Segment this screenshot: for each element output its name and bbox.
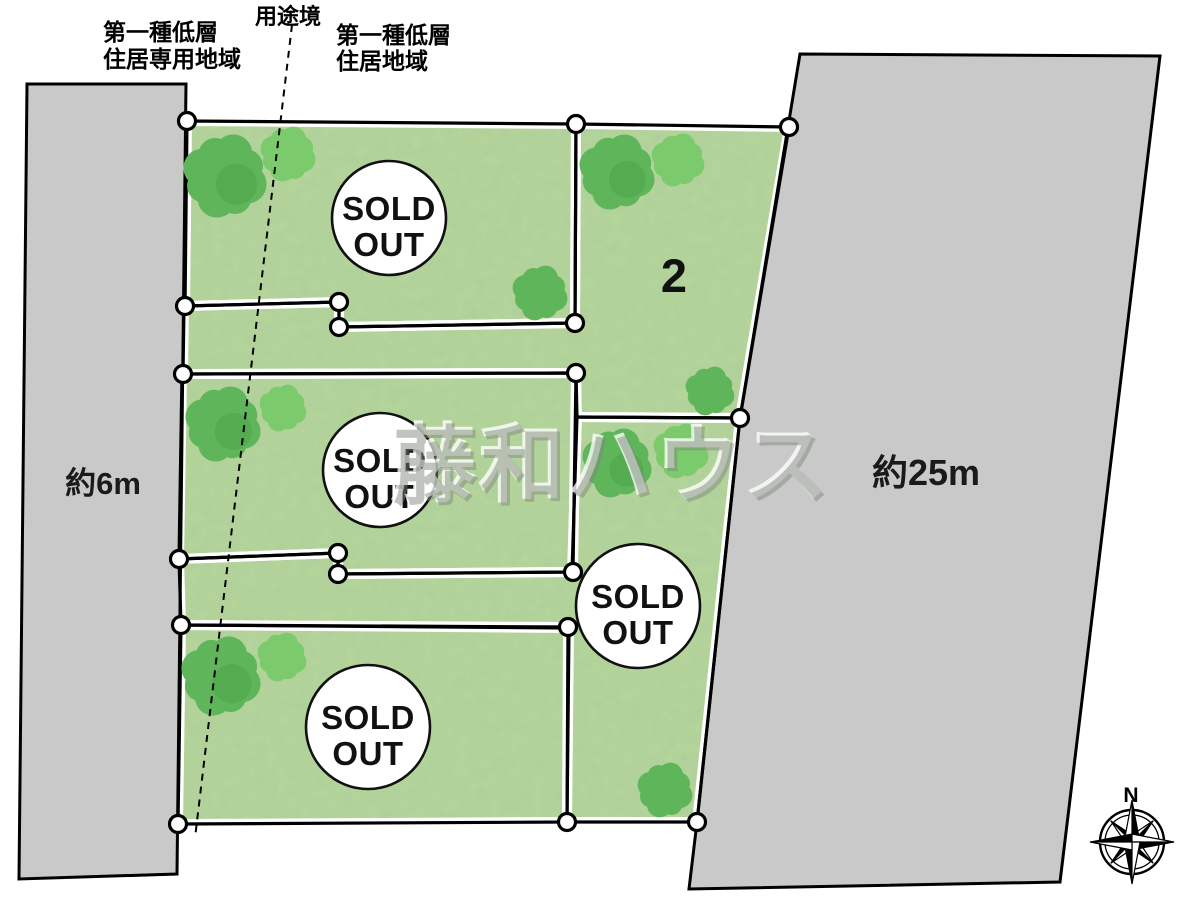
- zone-boundary-label: 用途境: [255, 4, 321, 29]
- sold-out-text: OUT: [332, 735, 403, 772]
- lot-5-sold-out-marker: SOLDOUT: [306, 665, 430, 789]
- zone-right-label-line1: 第一種低層: [336, 22, 451, 48]
- compass-point-light: [1132, 842, 1140, 884]
- survey-point: [689, 814, 706, 831]
- survey-point: [567, 315, 584, 332]
- survey-point: [175, 366, 192, 383]
- zone-left-label-line2: 住居専用地域: [103, 46, 241, 72]
- sold-out-text: SOLD: [591, 578, 685, 615]
- site-plan-map: SOLDOUTSOLDOUTSOLDOUTSOLDOUT 2 第一種低層 住居専…: [0, 0, 1200, 900]
- brand-watermark: 藤和ハウス: [393, 420, 833, 516]
- lot-1-sold-out-marker: SOLDOUT: [332, 161, 446, 275]
- survey-point: [330, 545, 347, 562]
- sold-out-text: SOLD: [342, 190, 436, 227]
- tree-shade-patch: [215, 413, 252, 450]
- survey-point: [331, 319, 348, 336]
- zone-left-label-line1: 第一種低層: [103, 19, 218, 45]
- survey-point: [177, 298, 194, 315]
- compass-rose: [1090, 800, 1174, 884]
- compass-point-dark: [1090, 834, 1132, 842]
- survey-point: [179, 113, 196, 130]
- survey-point: [781, 119, 798, 136]
- road-east-width-label: 約25m: [872, 452, 980, 493]
- tree-shade-patch: [216, 164, 257, 205]
- tree-shade-patch: [212, 664, 251, 703]
- road-west-width-label: 約6m: [65, 466, 141, 501]
- survey-point: [171, 551, 188, 568]
- lot-4-sold-out-marker: SOLDOUT: [576, 544, 700, 668]
- survey-point: [173, 617, 190, 634]
- survey-point: [330, 566, 347, 583]
- zone-right-label-line2: 住居地域: [336, 48, 428, 74]
- compass-point-light: [1132, 834, 1174, 842]
- compass-north-label: N: [1123, 784, 1138, 807]
- sold-out-text: OUT: [353, 226, 424, 263]
- survey-point: [559, 814, 576, 831]
- survey-point: [331, 294, 348, 311]
- survey-point: [568, 365, 585, 382]
- tree-shade-patch: [609, 161, 646, 198]
- compass-point-light: [1090, 842, 1132, 850]
- lot-2-number: 2: [661, 249, 687, 302]
- survey-point: [568, 116, 585, 133]
- survey-point: [170, 816, 187, 833]
- sold-out-text: SOLD: [321, 699, 415, 736]
- survey-point: [560, 619, 577, 636]
- sold-out-text: OUT: [602, 614, 673, 651]
- survey-point: [565, 564, 582, 581]
